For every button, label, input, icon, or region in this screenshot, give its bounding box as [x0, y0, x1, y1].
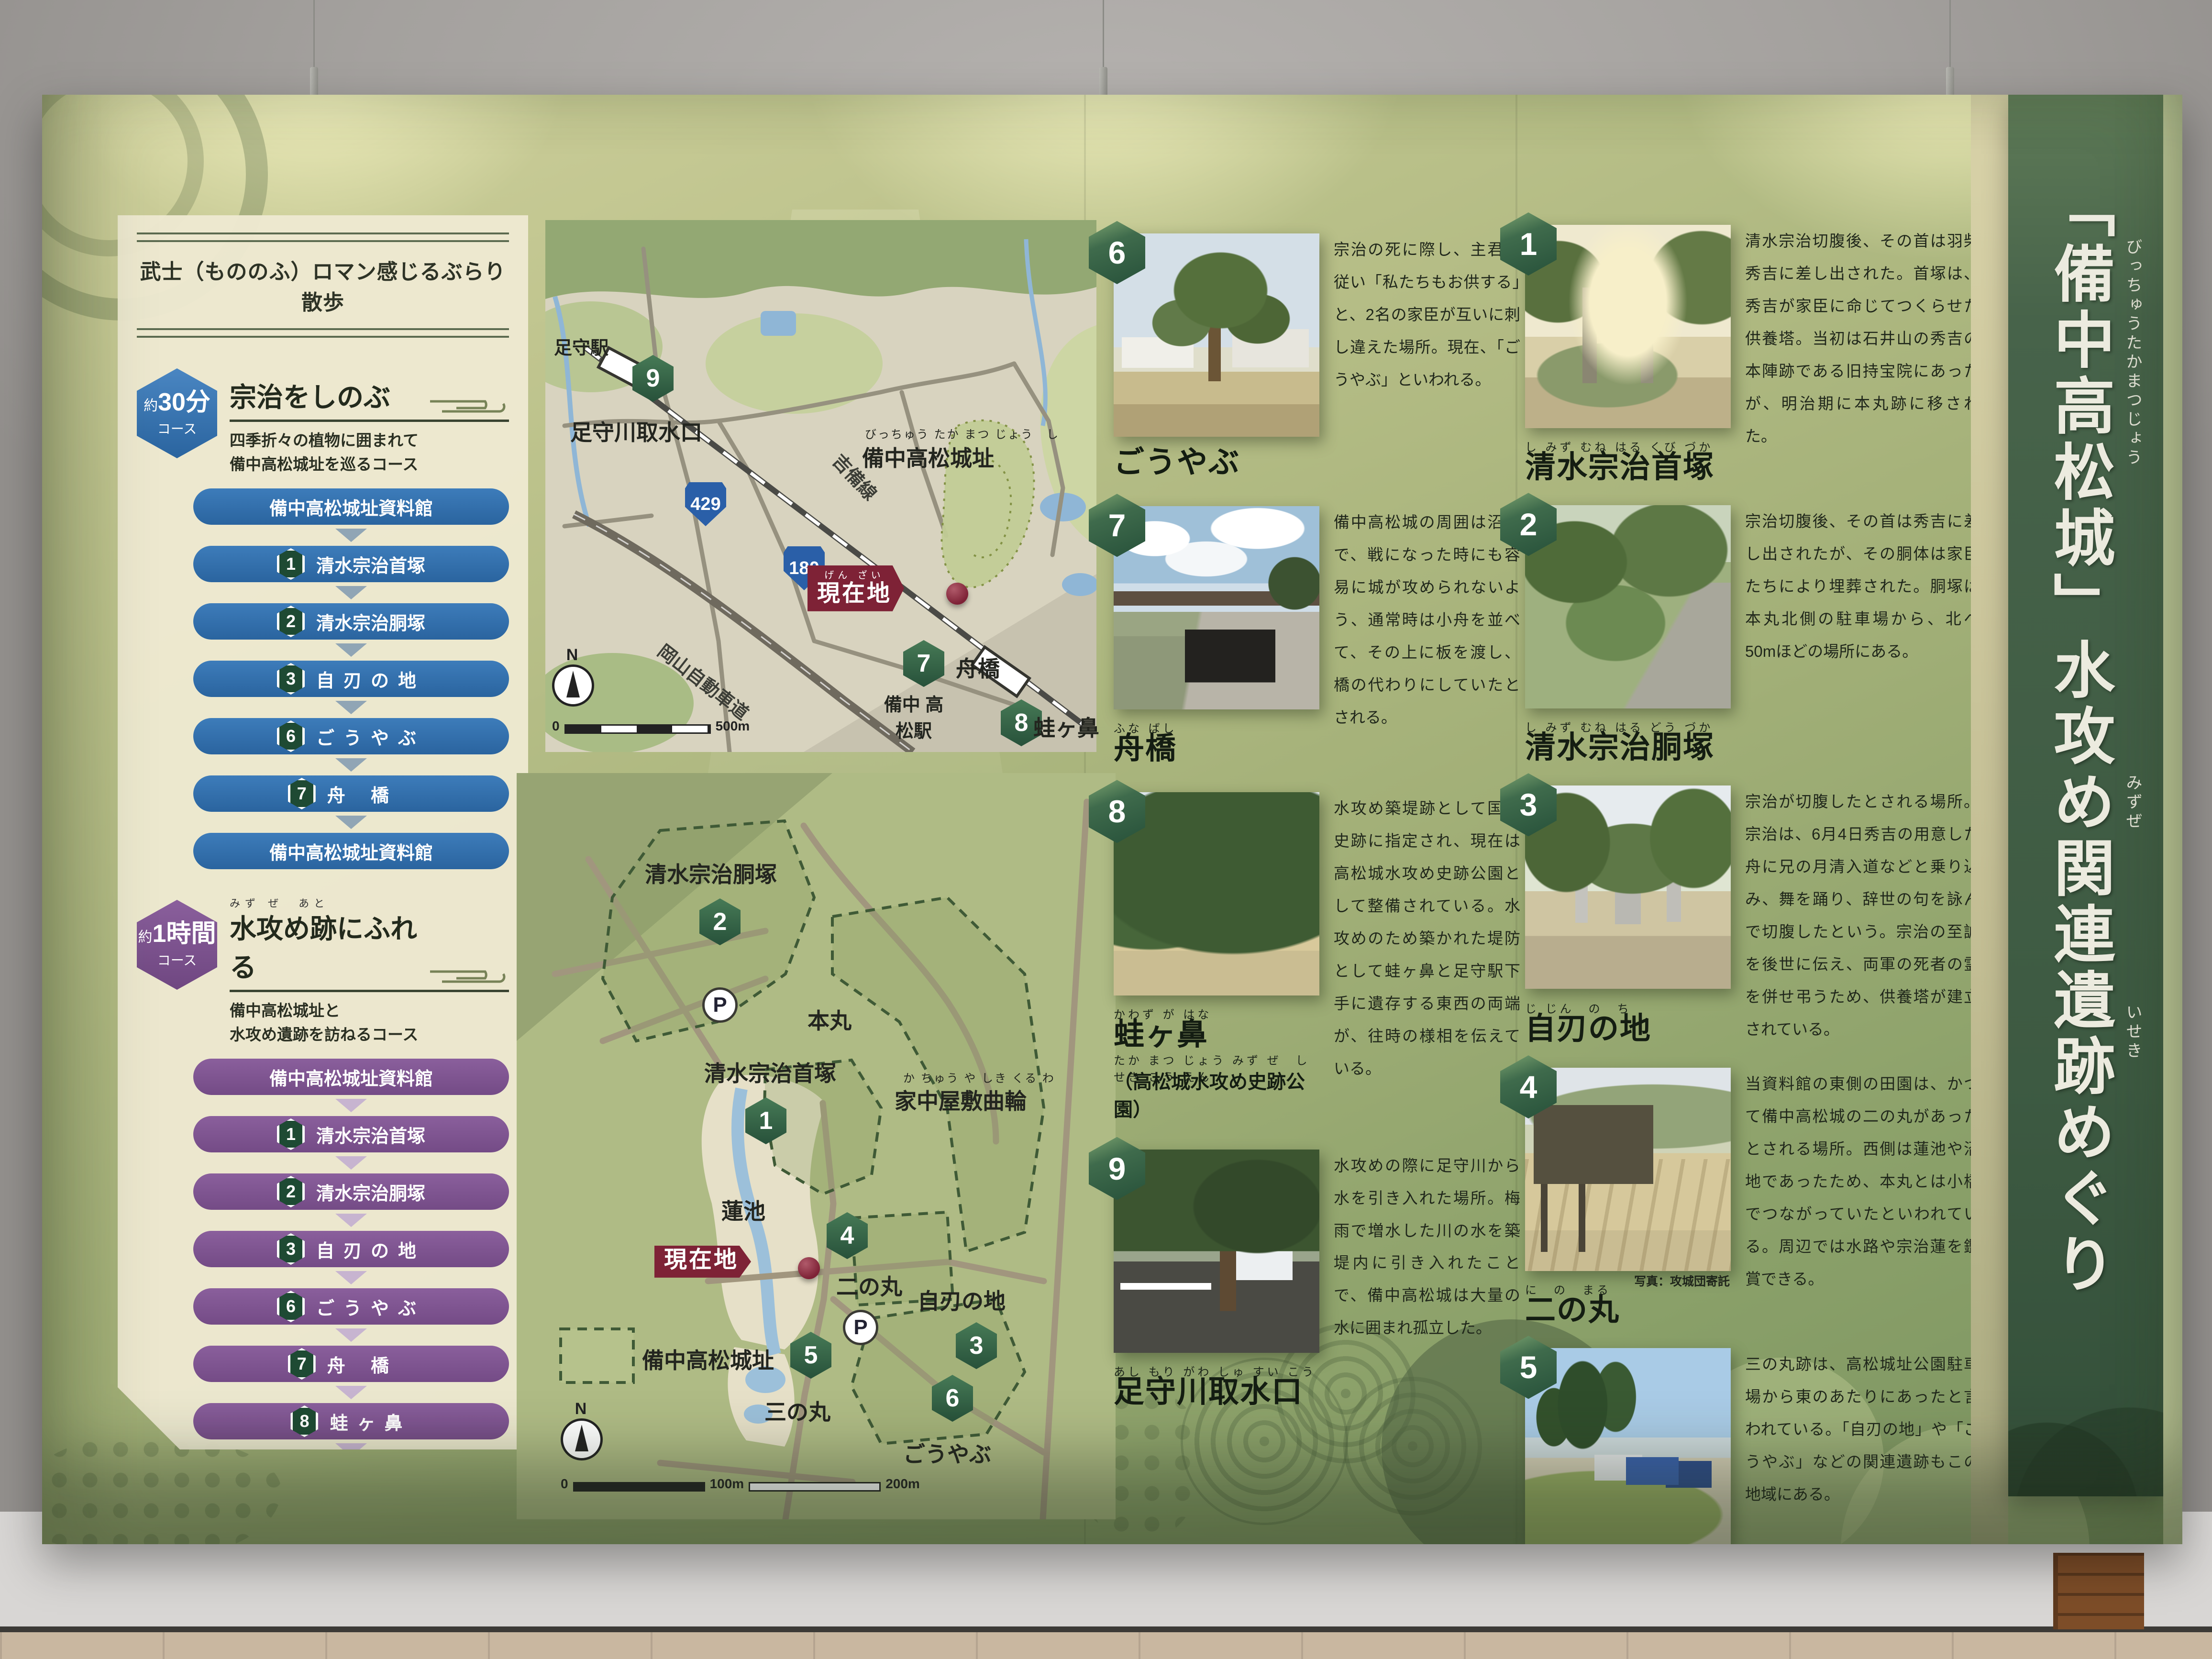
entry-description: 宗治が切腹したとされる場所。宗治は、6月4日秀吉の用意した舟に兄の月清入道などと… [1745, 785, 1980, 1046]
map-label-kuruwa: 家中屋敷曲輪 [895, 1084, 1027, 1116]
map-label-jijin: 自刃の地 [918, 1284, 1006, 1316]
entry-title: 足守川取水口 [1114, 1376, 1319, 1408]
entry-title: 自刃の地 [1525, 1013, 1731, 1045]
entry-title: 清水宗治胴塚 [1525, 731, 1731, 763]
course-name: 宗治をしのぶ [230, 376, 390, 415]
stop-number-badge: 8 [290, 1405, 318, 1437]
hanging-wire [313, 0, 315, 100]
course-stop: 備中高松城址資料館 [193, 1059, 509, 1095]
entry-title: 二の丸 [1525, 1294, 1731, 1326]
route-arrow [335, 758, 367, 772]
course-stop-list: 備中高松城址資料館 1 清水宗治首塚 2 清水宗治胴塚 3 自刃の地 6 ごうや… [193, 1059, 509, 1497]
entry-title-block: かわず が はな 蛙ヶ鼻 たか まつ じょう みず ぜ し せき こう えん （… [1114, 1005, 1319, 1121]
stop-number-badge: 3 [277, 663, 305, 695]
stop-label: 清水宗治胴塚 [316, 608, 425, 635]
parking-icon: P [843, 1310, 878, 1345]
entry-title-block: し みず むね はる どう づか 清水宗治胴塚 [1525, 718, 1731, 763]
course-stop: 8 蛙ヶ鼻 [193, 1403, 509, 1439]
map-label-takamatsu-station: 備中 高松駅 [880, 690, 947, 742]
course-stop: 備中高松城址資料館 [193, 833, 509, 869]
entry-description: 水攻めの際に足守川から水を引き入れた場所。梅雨で増水した川の水を築堤内に引き入れ… [1334, 1150, 1520, 1408]
route-arrow [335, 1214, 367, 1227]
board-main-title: 「備中高松城」水攻め関連遺跡めぐり [2035, 176, 2124, 1298]
course-time-badge: 約1時間 コース [137, 900, 217, 990]
compass: N [552, 646, 592, 703]
scale-bar: 0 100m 200m [561, 1476, 920, 1492]
site-entry: 3 じ じん の ち 自刃の地 宗治が切腹したとされる場所。宗治は、6月4日秀吉… [1525, 785, 1980, 1046]
route-arrow [335, 586, 367, 599]
entry-column-right: 1 し みず むね はる くび づか 清水宗治首塚 清水宗治切腹後、その首は羽柴… [1525, 225, 1980, 1544]
stop-label: 舟橋 [327, 781, 414, 807]
course-stop-list: 備中高松城址資料館 1 清水宗治首塚 2 清水宗治胴塚 3 自刃の地 6 ごうや… [193, 488, 509, 869]
map-furigana-kuruwa: か ちゅう や しき くる わ [903, 1069, 1055, 1085]
divider [137, 232, 509, 242]
entry-description: 宗治切腹後、その首は秀吉に差し出されたが、その胴体は家臣たちにより埋葬された。胴… [1745, 505, 1980, 763]
current-location-marker [946, 583, 968, 605]
stop-label: 備中高松城址資料館 [269, 1064, 433, 1090]
course-stop: 6 ごうやぶ [193, 1288, 509, 1325]
site-entry: 5 さん の まる 三の丸 三の丸跡は、高松城址公園駐車場から東のあたりにあった… [1525, 1348, 1980, 1544]
map-furigana-castle: びっちゅう たか まつ じょう し [865, 425, 1060, 442]
entry-subtitle-furigana: たか まつ じょう みず ぜ し せき こう えん [1114, 1051, 1319, 1064]
stop-number-badge: 2 [277, 1176, 305, 1207]
stop-label: 清水宗治首塚 [316, 1121, 425, 1148]
hanging-wire [1949, 0, 1951, 100]
entry-title: ごうやぶ [1114, 446, 1319, 478]
stop-label: 蛙ヶ鼻 [330, 1408, 411, 1435]
map-label-castle-site: 備中高松城址 [862, 441, 994, 473]
entry-description: 清水宗治切腹後、その首は羽柴秀吉に差し出された。首塚は、秀吉が家臣に命じてつくら… [1745, 225, 1980, 483]
banner-side-stripe [1971, 95, 2008, 1544]
route-arrow [335, 1099, 367, 1112]
wooden-box [2053, 1553, 2144, 1629]
current-location-tag: 現在地 [654, 1246, 751, 1278]
dotted-hill-decoration [42, 1434, 281, 1544]
site-entry: 4 写真：攻城団寄託 に の まる 二の丸 当資料館の東側の田園は、かつて備中高… [1525, 1068, 1980, 1326]
panel-title: 武士（もののふ）ロマン感じるぶらり散歩 [137, 254, 509, 316]
map-label-gouyabu: ごうやぶ [903, 1437, 991, 1469]
map-label-dozuka: 清水宗治胴塚 [645, 857, 777, 889]
course-stop: 1 清水宗治首塚 [193, 1116, 509, 1152]
map-label-honmaru: 本丸 [807, 1004, 852, 1035]
parking-icon: P [702, 987, 738, 1023]
map-label-intake: 足守川取水口 [570, 415, 702, 447]
route-arrow [335, 701, 367, 714]
entry-description: 宗治の死に際し、主君に従い「私たちもお供する」と、2名の家臣が互いに刺し違えた場… [1334, 233, 1520, 478]
stop-label: ごうやぶ [316, 723, 425, 750]
entry-title-block: ふな ばし 舟橋 [1114, 719, 1319, 764]
hanging-wire [1103, 0, 1104, 100]
photo-caption: 写真：攻城団寄託 [1634, 1272, 1730, 1289]
stop-label: 備中高松城址資料館 [269, 494, 433, 520]
stop-label: 舟橋 [327, 1351, 414, 1377]
course-time-badge: 約30分 コース [137, 368, 217, 458]
entry-title: 舟橋 [1114, 732, 1319, 764]
banner-furigana: びっちゅうたかまつじょう [2121, 238, 2145, 468]
information-board: 武士（もののふ）ロマン感じるぶらり散歩 約30分 コース 宗治をしのぶ 四季折々… [42, 95, 2182, 1544]
stop-label: 自刃の地 [316, 1236, 425, 1262]
route-arrow [335, 816, 367, 829]
cloud-motif-icon [428, 396, 509, 415]
stop-label: ごうやぶ [316, 1294, 425, 1320]
entry-title-block: ごうやぶ [1114, 446, 1319, 478]
stop-number-badge: 3 [277, 1233, 305, 1265]
site-entry: 6 ごうやぶ 宗治の死に際し、主君に従い「私たちもお供する」と、2名の家臣が互い… [1114, 233, 1520, 478]
route-arrow [335, 529, 367, 542]
route-arrow [335, 643, 367, 657]
map-label-legend: 備中高松城址 [642, 1343, 774, 1375]
entry-title: 蛙ヶ鼻 [1114, 1018, 1319, 1051]
stop-number-badge: 6 [277, 720, 305, 752]
stop-label: 備中高松城址資料館 [269, 838, 433, 864]
entry-description: 水攻め築堤跡として国の史跡に指定され、現在は高松城水攻め史跡公園として整備されて… [1334, 792, 1520, 1121]
course-30min: 約30分 コース 宗治をしのぶ 四季折々の植物に囲まれて備中高松城址を巡るコース… [137, 364, 509, 869]
divider [137, 328, 509, 338]
stop-number-badge: 6 [277, 1291, 305, 1322]
current-location-marker [798, 1257, 820, 1279]
route-arrow [335, 1443, 367, 1457]
main-title-banner: 「備中高松城」水攻め関連遺跡めぐり びっちゅうたかまつじょうみずぜいせき [2008, 95, 2163, 1496]
entry-subtitle: （高松城水攻め史跡公園） [1114, 1066, 1319, 1122]
stop-number-badge: 7 [288, 1348, 316, 1380]
stop-number-badge: 7 [288, 778, 316, 809]
course-stop: 2 清水宗治胴塚 [193, 1173, 509, 1210]
stop-number-badge: 2 [277, 606, 305, 637]
site-entry: 8 かわず が はな 蛙ヶ鼻 たか まつ じょう みず ぜ し せき こう えん… [1114, 792, 1520, 1121]
map-label-kawazugahana: 蛙ヶ鼻 [1033, 711, 1099, 742]
entry-description: 当資料館の東側の田園は、かつて備中高松城の二の丸があったとされる場所。西側は蓮池… [1745, 1068, 1980, 1326]
map-label-funabashi: 舟橋 [956, 652, 1000, 683]
overview-map: 足守駅 9 足守川取水口 429 180 吉備線 岡山自動車道 びっちゅう たか… [545, 220, 1096, 752]
route-arrow [335, 1386, 367, 1399]
current-location-tag: げん ざい現在地 [807, 565, 904, 611]
site-entry: 2 し みず むね はる どう づか 清水宗治胴塚 宗治切腹後、その首は秀吉に差… [1525, 505, 1980, 763]
course-stop: 6 ごうやぶ [193, 718, 509, 754]
site-entry: 1 し みず むね はる くび づか 清水宗治首塚 清水宗治切腹後、その首は羽柴… [1525, 225, 1980, 483]
scale-bar: 0500m [552, 719, 750, 734]
banner-furigana: みずぜ [2121, 774, 2145, 831]
course-stop: 3 自刃の地 [193, 661, 509, 697]
site-entry: 9 あし もり がわ しゅ すい こう 足守川取水口 水攻めの際に足守川から水を… [1114, 1150, 1520, 1408]
entry-description: 三の丸跡は、高松城址公園駐車場から東のあたりにあったと言われている。「自刃の地」… [1745, 1348, 1980, 1544]
route-arrow [335, 1156, 367, 1170]
entry-title-block: し みず むね はる くび づか 清水宗治首塚 [1525, 438, 1731, 483]
stop-label: 清水宗治首塚 [316, 551, 425, 577]
course-name: 築堤跡をたどる [230, 1535, 417, 1544]
floor [0, 1632, 2212, 1659]
course-1hour: 約1時間 コース みず ぜ あと 水攻め跡にふれる 備中高松城址と水攻め遺跡を訪… [137, 895, 509, 1497]
map-label-ashimori-station: 足守駅 [554, 333, 608, 359]
entry-title: 清水宗治首塚 [1525, 451, 1731, 483]
entry-column-left: 6 ごうやぶ 宗治の死に際し、主君に従い「私たちもお供する」と、2名の家臣が互い… [1114, 233, 1520, 1408]
course-stop: 備中高松城址資料館 [193, 488, 509, 525]
stop-number-badge: 1 [277, 1118, 305, 1150]
map-label-ninomaru: 二の丸 [836, 1270, 902, 1301]
map-label-kubizuka: 清水宗治首塚 [704, 1056, 836, 1088]
entry-title-block: あし もり がわ しゅ すい こう 足守川取水口 [1114, 1362, 1319, 1408]
route-arrow [335, 1328, 367, 1342]
entry-description: 備中高松城の周囲は沼地で、戦になった時にも容易に城が攻められないよう、通常時は小… [1334, 506, 1520, 764]
course-panel: 武士（もののふ）ロマン感じるぶらり散歩 約30分 コース 宗治をしのぶ 四季折々… [118, 215, 528, 1449]
course-stop: 7 舟橋 [193, 1346, 509, 1382]
banner-furigana: いせき [2121, 1004, 2145, 1061]
compass: N [561, 1400, 601, 1457]
course-name: 水攻め跡にふれる [230, 907, 428, 985]
course-stop: 2 清水宗治胴塚 [193, 603, 509, 640]
stop-label: 自刃の地 [316, 666, 425, 692]
route-arrow [335, 1271, 367, 1284]
stop-label: 清水宗治胴塚 [316, 1179, 425, 1205]
stop-label: 備中高松城址資料館 [269, 1466, 433, 1492]
entry-title-block: じ じん の ち 自刃の地 [1525, 999, 1731, 1046]
site-entry: 7 ふな ばし 舟橋 備中高松城の周囲は沼地で、戦になった時にも容易に城が攻めら… [1114, 506, 1520, 764]
cloud-motif-icon [428, 966, 509, 985]
course-stop: 1 清水宗治首塚 [193, 546, 509, 582]
detail-map: 清水宗治胴塚 2 P 本丸 清水宗治首塚 1 か ちゅう や しき くる わ 家… [517, 773, 1116, 1519]
map-label-hasuike: 蓮池 [721, 1194, 765, 1226]
stop-number-badge: 1 [277, 548, 305, 580]
banner-side-stripe [2163, 95, 2182, 1544]
course-stop: 7 舟橋 [193, 775, 509, 812]
map-label-sannomaru: 三の丸 [764, 1395, 830, 1427]
course-stop: 3 自刃の地 [193, 1231, 509, 1267]
